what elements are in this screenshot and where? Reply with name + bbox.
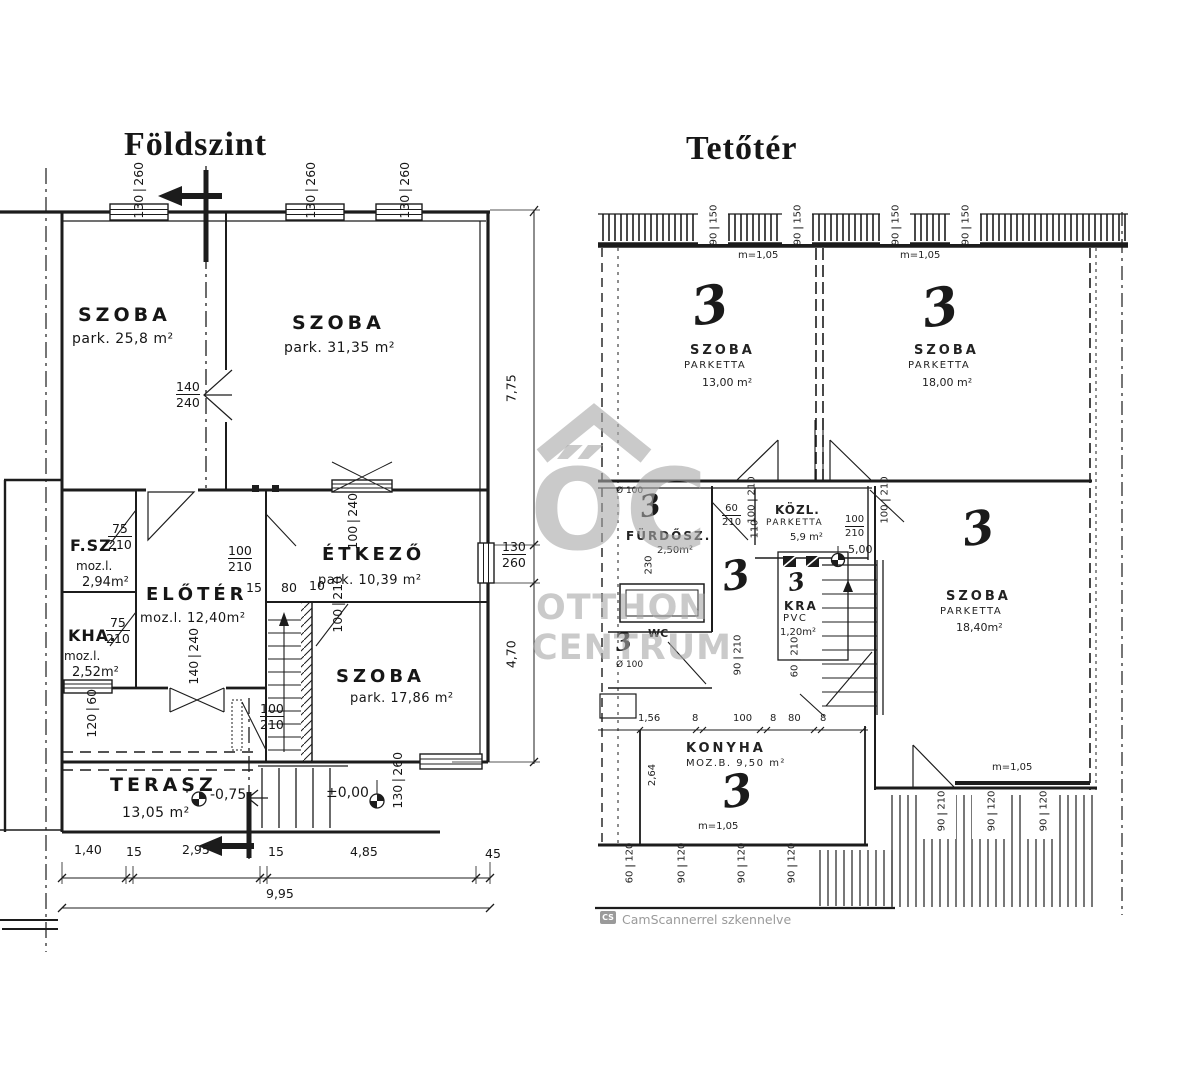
dim-total: 9,95 [266,888,294,901]
gap-dim: 110 [751,519,761,538]
pipe-dim: Ø 100 [616,661,643,670]
attic-title: Tetőtér [686,132,797,166]
level-value: -0,75 [210,788,246,802]
room-finish-attic-szoba1: PARKETTA [684,361,746,371]
door-dim: 90 210 [733,635,743,676]
dim-value: 210 [790,637,800,661]
dim-value: 260 [502,554,526,570]
room-label-kozl: KÖZL. [775,504,820,516]
dim-value: 210 [332,576,345,605]
dim-value: 240 [176,394,200,410]
room-finish-attic-szoba3: PARKETTA [940,607,1002,617]
dim-value: 140 [188,661,201,685]
level-value: 5,00 [848,544,873,555]
room-area-szoba2: park. 31,35 m² [284,341,395,355]
dim-value: 120 [1039,791,1049,815]
room-finish-kra: PVC [783,614,807,624]
room-finish-kozl: PARKETTA [766,519,823,528]
room-label-attic-szoba3: SZOBA [946,590,1011,603]
level-marker-icon [832,546,845,567]
dim-value: 130 [392,785,405,809]
dim-segment: 1,40 [74,844,102,857]
dim-value: 130 [399,195,412,219]
dim-value: 120 [737,843,747,867]
dim-value: 150 [891,205,901,229]
door-dim: 100 210 [748,476,758,523]
level-value: ±0,00 [326,786,369,800]
room-area-eloter: moz.l. 12,40m² [140,612,246,625]
dim-value: 150 [961,205,971,229]
floorplan-scan-page: Földszint 130 260 130 260 130 260 SZOBA … [0,0,1202,1080]
dim-value: 260 [399,162,412,191]
dim-value: 260 [305,162,318,191]
dim-segment: 2,95 [182,844,210,857]
dim-value: 90 [787,871,797,884]
room-area-fsz: 2,94m² [82,576,129,589]
dim-value: 75 [110,616,126,630]
room-label-szoba1: SZOBA [78,306,171,325]
dim-value: 210 [722,515,741,529]
door-dim-kha: 75 210 [106,616,130,647]
door-dim-kra: 60 210 [790,637,800,678]
dim-value: 60 [86,689,99,710]
window-dim: 90 120 [787,843,797,884]
dim-value: 120 [86,714,99,738]
door-dim: 100 210 [228,544,252,575]
dim-value: 210 [937,791,947,815]
dim-segment: 8 [820,714,826,724]
window-dim: 130 260 [133,162,146,219]
dim-value: 240 [188,628,201,657]
window-dim: 130 260 [392,752,405,809]
dim-value: 100 [332,609,345,633]
window-dim: 130 260 [399,162,412,219]
room-area-attic-szoba2: 18,00 m² [922,377,972,388]
gap-dim: 15 [246,582,262,595]
staircase-attic [822,560,883,715]
window-dim: 90 150 [709,205,719,246]
dim-value: 60 [625,871,635,884]
dim-value: 100 [228,544,252,558]
dim-value: 140 [176,380,200,394]
dim-value: 120 [787,843,797,867]
window-dim: 100 240 [347,493,360,550]
dim-value: 210 [260,716,284,732]
room-area-attic-szoba1: 13,00 m² [702,377,752,388]
room-label-attic-szoba1: SZOBA [690,344,755,357]
dim-segment: 8 [692,714,698,724]
dim-value: 210 [228,558,252,574]
dim-value: 130 [502,540,526,554]
door-dim: 100 210 [332,576,345,633]
window-dim: 120 60 [86,689,99,738]
room-label-terasz: TERASZ [110,776,217,795]
scanner-note: CamScannerrel szkennelve [622,912,791,927]
dim-value: 240 [347,493,360,522]
dim-value: 60 [725,503,738,515]
dim-segment: 4,85 [350,846,378,859]
staircase-ground [268,602,312,762]
room-area-terasz: 13,05 m² [122,806,190,820]
dim-value: 75 [112,522,128,536]
window-dim: 90 120 [987,791,997,832]
room-label-etkezo: ÉTKEZŐ [322,546,425,564]
dim-value: 130 [305,195,318,219]
dim-segment: 45 [485,848,501,861]
dim-value: 90 [733,663,743,676]
dim-segment: 8 [770,714,776,724]
dim-value: 100 [260,702,284,716]
dim-value: 260 [392,752,405,781]
dim-value: 100 [881,505,891,524]
window-dim: 90 150 [891,205,901,246]
room-area-kha: 2,52m² [72,666,119,679]
gap-dim: 10 [309,580,325,593]
dim-value: 210 [845,526,864,540]
room-area-szoba3: park. 17,86 m² [350,692,454,705]
window-dim: 90 150 [961,205,971,246]
window-dim: 60 120 [625,843,635,884]
door-dim-entry: 100 210 [260,702,284,733]
room-area-attic-szoba3: 18,40m² [956,622,1003,633]
room-finish-attic-szoba2: PARKETTA [908,361,970,371]
dim-value: 130 [133,195,146,219]
dim-height-upper: 7,75 [506,374,519,402]
room-area-szoba1: park. 25,8 m² [72,332,174,346]
dim-value: 210 [881,476,891,500]
dim-value: 120 [987,791,997,815]
dim-value: 100 [845,514,864,526]
gap-dim: 80 [281,582,297,595]
dim-segment: 80 [788,714,801,724]
room-label-kra: KRA [784,600,818,612]
door-dim: 100 210 [845,514,864,539]
window-dim: 90 120 [737,843,747,884]
ceiling-height-note: m=1,05 [698,822,738,832]
dim-segment: 1,56 [638,714,660,724]
room-label-wc: WC [648,628,668,639]
room-area-furdosz: 2,50m² [657,546,693,556]
dim-value: 2,64 [648,764,658,786]
dim-value: 120 [677,843,687,867]
room-label-attic-szoba2: SZOBA [914,344,979,357]
dim-value: 90 [987,819,997,832]
dim-value: 90 [709,233,719,246]
ground-floor-title: Földszint [124,128,267,162]
dim-segment: 15 [126,846,142,859]
room-area-kozl: 5,9 m² [790,533,823,543]
window-dim: 90 150 [793,205,803,246]
dim-value: 120 [625,843,635,867]
dim-value: 90 [677,871,687,884]
dim-value: 90 [737,871,747,884]
dim-value: 90 [891,233,901,246]
room-label-furdosz: FÜRDŐSZ. [626,530,711,542]
dim-segment: 15 [268,846,284,859]
window-dim: 130 260 [305,162,318,219]
ceiling-height-note: m=1,05 [900,251,940,261]
ceiling-height-note: m=1,05 [992,763,1032,773]
opening-dim: 140 240 [176,380,200,411]
window-dim: 90 120 [677,843,687,884]
dim-value: 90 [1039,819,1049,832]
room-material-fsz: moz.l. [76,560,112,572]
dim-value: 230 [645,555,655,574]
door-dim: 100 210 [881,476,891,523]
door-dim-fsz: 75 210 [108,522,132,553]
room-label-szoba3: SZOBA [336,668,425,686]
room-material-kha: moz.l. [64,650,100,662]
door-dim-furdosz: 60 210 [722,503,741,528]
room-label-konyha: KONYHA [686,742,766,755]
camscanner-badge-icon: CS [600,911,616,924]
dim-value: 210 [106,630,130,646]
opening-dim: 140 240 [188,628,201,685]
dim-value: 150 [709,205,719,229]
ceiling-height-note: m=1,05 [738,251,778,261]
dim-value: 210 [733,635,743,659]
window-dim: 90 120 [1039,791,1049,832]
door-dim: 90 210 [937,791,947,832]
window-dim-right: 130 260 [502,540,526,571]
dimension-line-right [452,206,540,766]
dim-value: 90 [937,819,947,832]
dim-value: 60 [790,665,800,678]
dim-value: 90 [961,233,971,246]
room-label-eloter: ELŐTÉR [146,586,248,604]
dim-value: 210 [748,476,758,500]
dim-value: 260 [133,162,146,191]
dim-value: 210 [108,536,132,552]
level-marker-icon [370,780,384,808]
dim-height-lower: 4,70 [506,640,519,668]
dim-segment: 100 [733,714,752,724]
dim-value: 90 [793,233,803,246]
dim-value: 150 [793,205,803,229]
room-label-szoba2: SZOBA [292,314,385,333]
